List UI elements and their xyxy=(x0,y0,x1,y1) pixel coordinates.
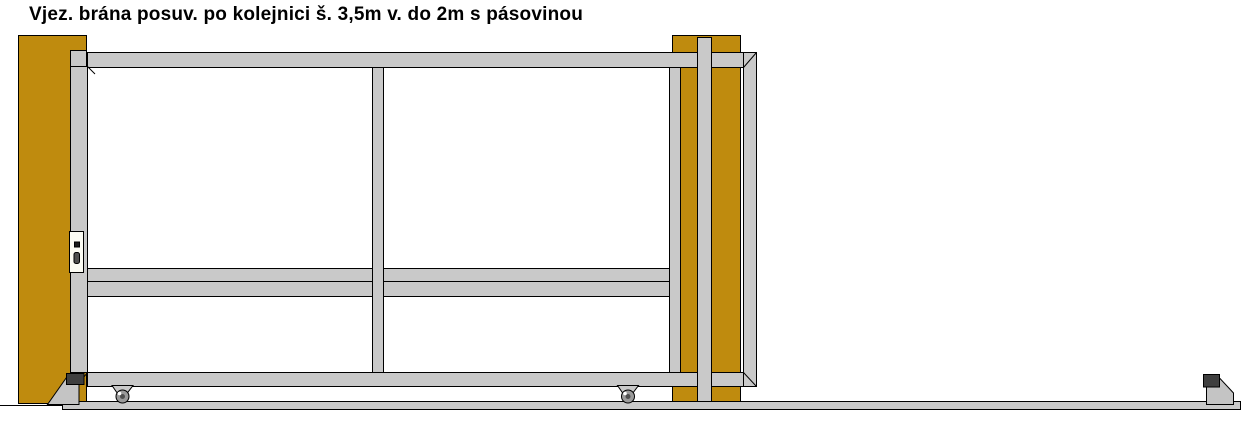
gate-top-rail xyxy=(88,53,757,68)
wheel-highlight xyxy=(118,392,122,396)
guide-post-flat-bar xyxy=(698,38,712,402)
lock-keyhole xyxy=(75,242,80,247)
gate-wheel-right xyxy=(618,386,639,404)
gate-center-vertical-bar xyxy=(373,67,384,373)
gate-bottom-rail xyxy=(88,373,757,387)
top-guide-bracket xyxy=(71,51,87,67)
gate-drawing-svg xyxy=(0,0,1248,426)
wheel-highlight xyxy=(623,392,627,396)
left-catch-block xyxy=(67,374,85,385)
gate-left-stile xyxy=(71,53,88,373)
gate-right-vertical-bar xyxy=(670,67,681,373)
ground-rail-track xyxy=(63,402,1241,410)
gate-wheel-left xyxy=(112,386,133,404)
lock-cylinder xyxy=(74,253,80,264)
right-catch-block xyxy=(1204,375,1220,388)
gate-technical-drawing: Vjez. brána posuv. po kolejnici š. 3,5m … xyxy=(0,0,1248,426)
gate-right-stile xyxy=(744,53,757,387)
